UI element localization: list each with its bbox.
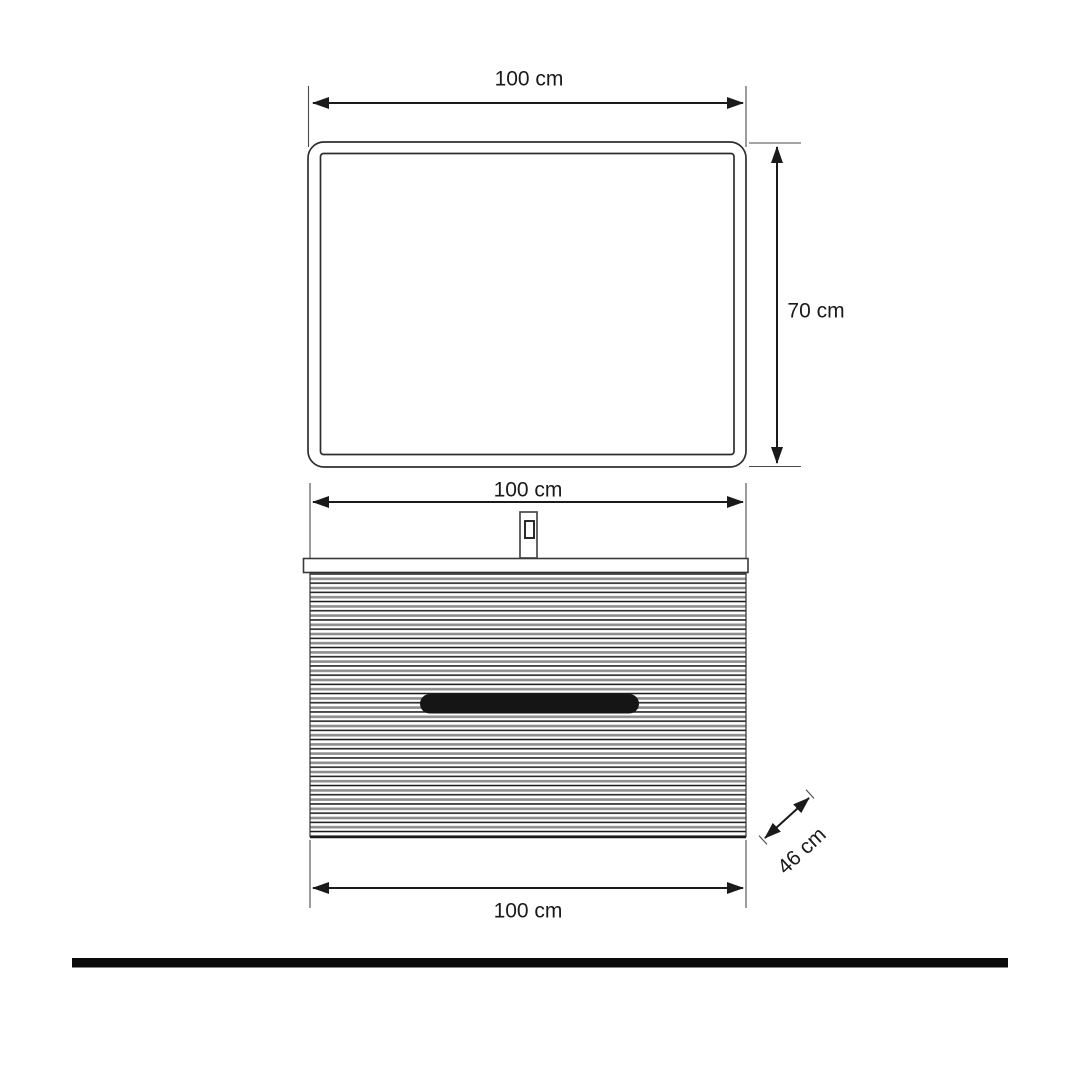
cabinet-width-top-label: 100 cm: [494, 480, 563, 501]
cabinet-countertop: [304, 559, 749, 573]
faucet-handle-detail: [525, 521, 534, 538]
floor-line: [72, 958, 1008, 968]
depth-dim-tick-upper: [806, 790, 814, 799]
vanity-dimension-drawing: 100 cm 70 cm 100 cm 46 cm 100 cm: [0, 0, 1081, 1081]
mirror-height-label: 70 cm: [787, 301, 844, 322]
cabinet-width-bottom-label: 100 cm: [494, 901, 563, 922]
cabinet-handle: [420, 694, 639, 714]
mirror-width-label: 100 cm: [495, 69, 564, 90]
mirror-inner-frame: [321, 154, 735, 455]
cabinet-depth-dimension-arrow: [765, 798, 809, 838]
